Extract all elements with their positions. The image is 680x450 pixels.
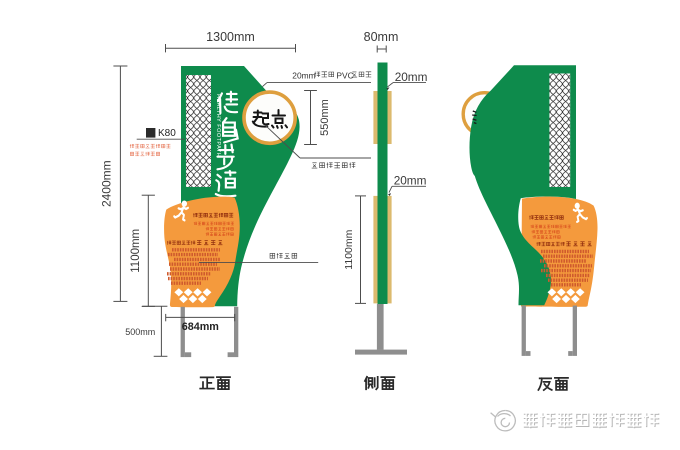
svg-text:1300mm: 1300mm: [206, 30, 255, 44]
svg-text:K80: K80: [158, 128, 176, 139]
svg-text:1100mm: 1100mm: [130, 229, 142, 273]
svg-text:20mm: 20mm: [394, 174, 427, 188]
svg-text:684mm: 684mm: [182, 321, 219, 333]
svg-text:PVC: PVC: [336, 70, 353, 80]
svg-text:500mm: 500mm: [125, 327, 155, 337]
svg-text:2400mm: 2400mm: [100, 160, 114, 207]
svg-text:550mm: 550mm: [319, 99, 331, 136]
svg-text:1100mm: 1100mm: [343, 229, 355, 269]
svg-text:20mm: 20mm: [395, 70, 428, 84]
svg-text:20mm: 20mm: [292, 70, 315, 80]
svg-text:80mm: 80mm: [364, 30, 399, 44]
